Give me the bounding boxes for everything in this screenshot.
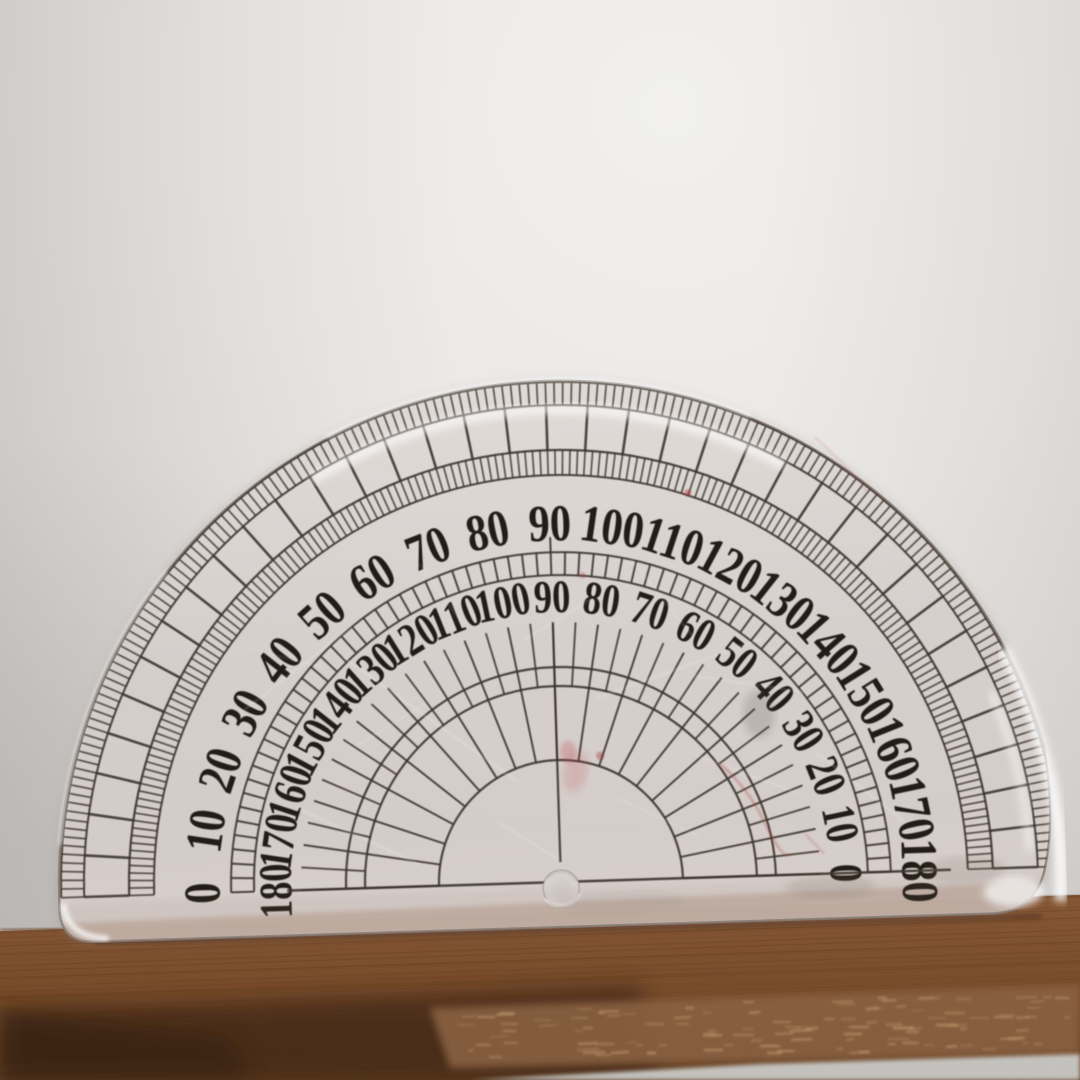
svg-text:10: 10 [175, 806, 237, 856]
svg-text:90: 90 [533, 570, 571, 624]
svg-text:80: 80 [580, 571, 624, 628]
